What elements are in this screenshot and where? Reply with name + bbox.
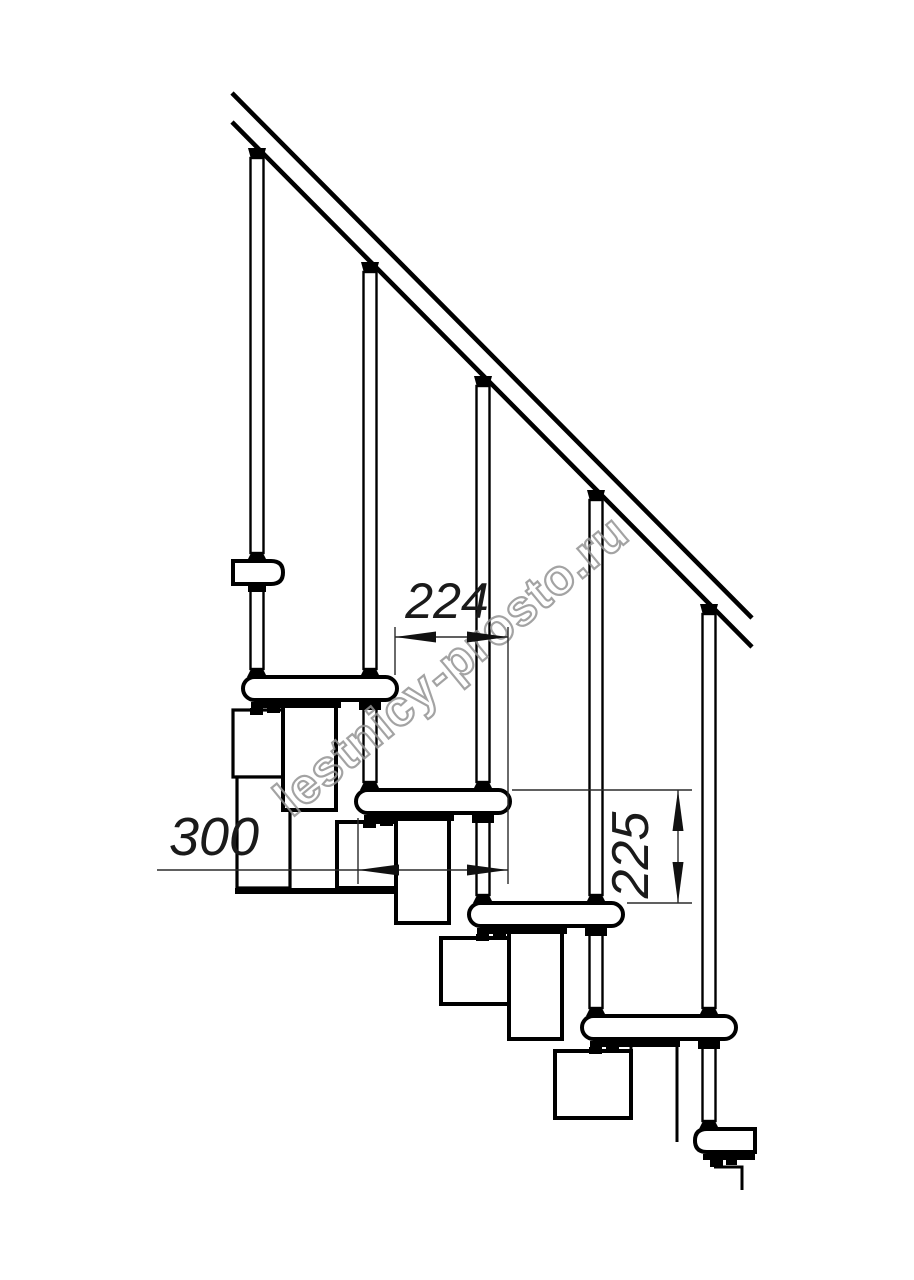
handrail-upper-line [232,93,752,618]
baluster-3-lower-section [477,817,490,895]
stair-drawing-page: lestnicy-prosto.ru 224 300 225 [0,0,914,1280]
baluster-5-under-nut [698,1041,720,1049]
dim-225-arrow-bottom [673,862,684,903]
tread-2 [356,790,510,813]
connector-module-3 [441,938,514,1004]
connector-module-2 [337,822,397,888]
baluster-3-tread-collar [473,782,493,790]
baluster-2-base-flare [360,782,380,790]
baluster-1 [248,148,266,669]
handrail [232,93,752,647]
stair-side-view-drawing: lestnicy-prosto.ru 224 300 225 [0,0,914,1280]
tread-2-foot-b [380,821,393,826]
tread-5-foot-b [726,1160,737,1165]
baluster-2-upper-section [364,272,377,669]
baluster-1-upper-section [251,158,264,553]
tread-4-underside-strip [590,1041,680,1047]
tread-1-underside-strip [251,702,341,708]
watermark: lestnicy-prosto.ru [263,503,638,826]
tread-1-foot-b [267,708,280,713]
module-chain-base-line [235,888,401,894]
baluster-5-upper-section [703,614,716,1008]
baluster-4-under-nut [585,928,607,936]
tread-3-underside-strip [477,928,567,934]
tread-5-underside-strip [703,1154,755,1160]
dimension-depth-300: 300 [157,807,508,884]
connector-module-4 [555,1051,631,1118]
drawing-break-lines [714,1167,742,1190]
dim-225-label: 225 [602,811,660,900]
baluster-2-tread-collar [360,669,380,677]
baluster-5 [698,604,720,1121]
break-line-bottom-right [714,1167,742,1190]
tread-4-foot-a [589,1047,602,1054]
tread-1-foot-a [250,708,263,715]
baluster-5-lower-section [703,1043,716,1121]
tread-4 [582,1016,736,1039]
dim-225-arrow-top [673,790,684,831]
tread-3-foot-a [476,934,489,941]
baluster-1-tread-collar [247,553,267,561]
watermark-text: lestnicy-prosto.ru [263,503,638,826]
tread-5-broken [695,1129,755,1152]
baluster-4-lower-section [590,930,603,1008]
baluster-5-tread-collar [699,1008,719,1016]
baluster-1-lower-section [251,586,264,669]
tread-3-foot-b [493,934,506,939]
dim-224-arrow-left [395,632,436,643]
tread-2-foot-a [363,821,376,828]
tread-4-foot-b [606,1047,619,1052]
baluster-4-base-flare [586,1008,606,1016]
baluster-3-base-flare [473,895,493,903]
tread-2-underside-strip [364,815,454,821]
dim-224-label: 224 [404,573,488,629]
stringer-module-3 [509,931,562,1039]
tread-0-end-view [233,561,283,584]
dim-300-label: 300 [169,807,259,867]
handrail-lower-line [232,122,752,647]
baluster-1-base-flare [247,669,267,677]
tread-3 [469,903,623,926]
baluster-3-under-nut [472,815,494,823]
